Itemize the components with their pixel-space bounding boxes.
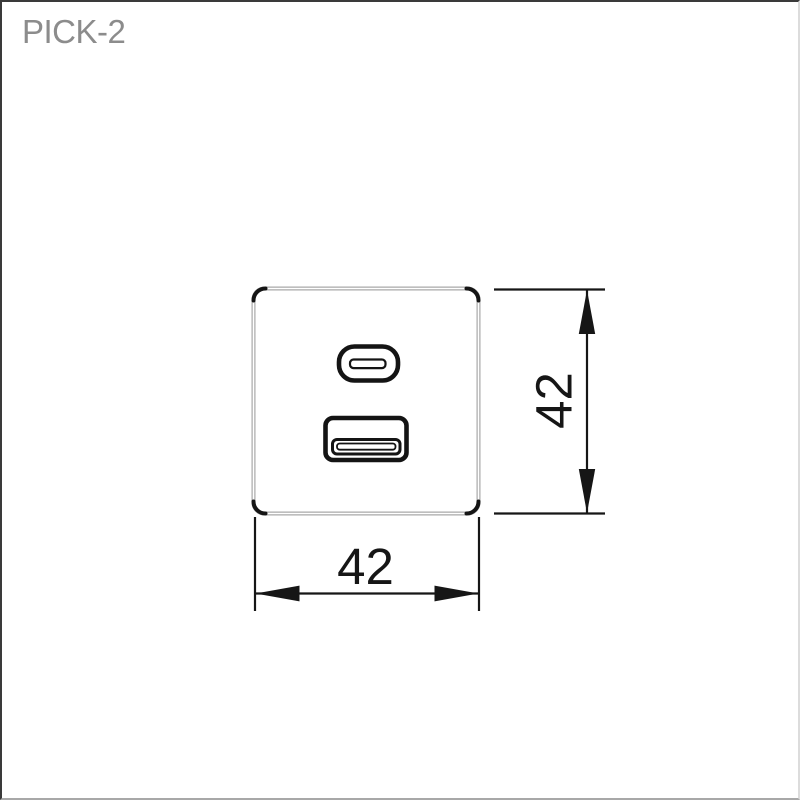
- arrow-up-icon: [579, 290, 595, 334]
- arrow-left-icon: [256, 586, 300, 602]
- technical-drawing: 42 42: [2, 2, 800, 800]
- height-dimension-label: 42: [526, 372, 583, 429]
- usb-c-port-icon: [339, 347, 398, 381]
- faceplate-outline: [254, 289, 479, 514]
- usb-a-port-icon: [326, 418, 407, 460]
- width-dimension: 42: [255, 517, 479, 611]
- width-dimension-label: 42: [337, 538, 394, 595]
- height-dimension: 42: [494, 290, 605, 514]
- page: PICK-2 42: [0, 0, 800, 800]
- arrow-down-icon: [579, 469, 595, 513]
- usb-c-outer: [339, 347, 398, 381]
- faceplate-body: [254, 289, 479, 514]
- usb-a-tongue: [333, 440, 401, 455]
- arrow-right-icon: [435, 586, 479, 602]
